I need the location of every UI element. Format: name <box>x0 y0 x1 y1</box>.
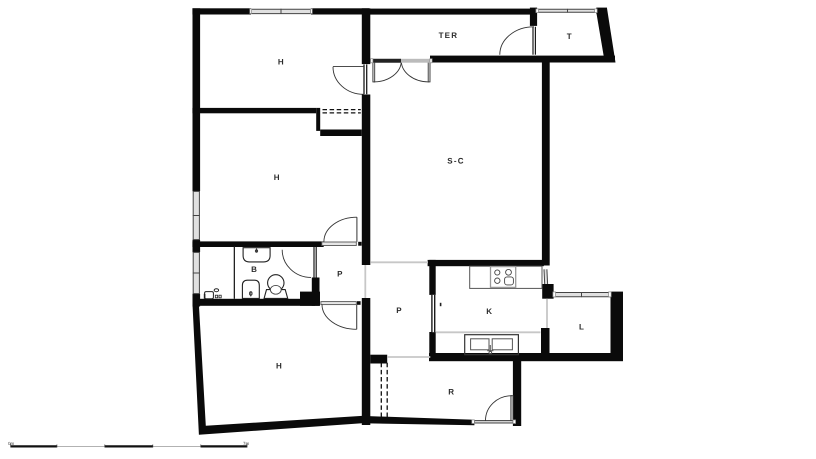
svg-text:H: H <box>276 362 283 371</box>
svg-text:B: B <box>251 265 258 274</box>
svg-text:K: K <box>486 307 493 316</box>
svg-text:7m: 7m <box>243 441 250 446</box>
svg-text:P: P <box>396 306 403 315</box>
svg-text:L: L <box>579 323 585 332</box>
svg-text:P: P <box>337 270 344 279</box>
svg-text:T: T <box>567 32 573 41</box>
svg-text:H: H <box>274 173 281 182</box>
svg-text:H: H <box>278 57 285 66</box>
svg-text:S-C: S-C <box>447 156 464 165</box>
svg-text:TER: TER <box>439 31 459 40</box>
svg-text:0m: 0m <box>8 441 15 446</box>
svg-text:R: R <box>448 388 455 397</box>
